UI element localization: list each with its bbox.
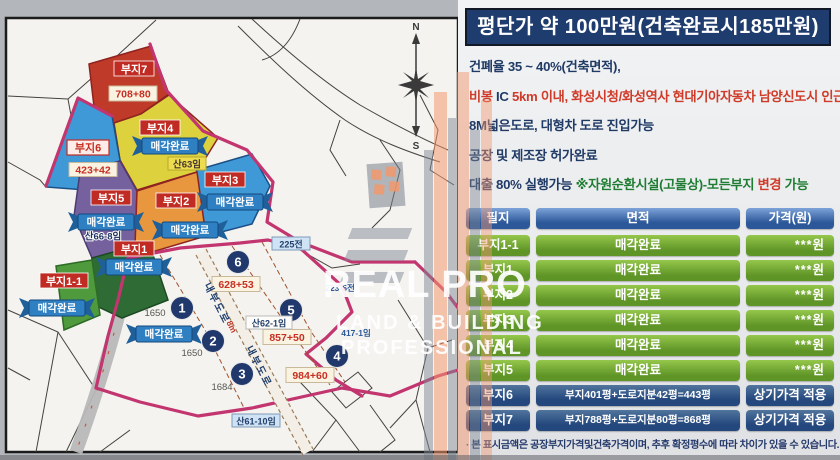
table-footnote: · 본 표시금액은 공장부지가격및건축가격이며, 추후 확정평수에 따라 차이가… xyxy=(466,436,838,451)
svg-text:부지4: 부지4 xyxy=(147,121,174,135)
row-area: 매각완료 xyxy=(536,310,740,331)
label-417-1: 417-1임 xyxy=(341,328,371,338)
table-row: 부지5 매각완료 ***원 xyxy=(466,360,834,381)
svg-text:984+60: 984+60 xyxy=(292,370,327,382)
svg-text:4: 4 xyxy=(333,349,341,364)
notes-block: 건폐율 35 ~ 40%(건축면적), 비봉 IC 5km 이내, 화성시청/화… xyxy=(469,56,837,204)
label-buji1: 부지1 xyxy=(114,241,154,256)
svg-text:부지7: 부지7 xyxy=(121,62,147,76)
svg-text:708+80: 708+80 xyxy=(115,89,150,101)
note-line-3: 8M넓은도로, 대형차 도로 진입가능 xyxy=(469,115,837,134)
label-1684: 1684 xyxy=(211,382,232,393)
ribbon-buji1: 매각완료 xyxy=(96,257,172,277)
table-row: 부지4 매각완료 ***원 xyxy=(466,335,834,356)
label-1650-a: 1650 xyxy=(144,308,165,319)
row-area: 부지401평+도로지분42평=443평 xyxy=(536,385,740,406)
svg-text:부지1-1: 부지1-1 xyxy=(46,274,82,288)
label-buji1-1: 부지1-1 xyxy=(40,273,88,288)
row-name: 부지6 xyxy=(466,385,530,406)
label-857-50: 857+50 xyxy=(263,330,311,345)
note-line-2: 비봉 IC 5km 이내, 화성시청/화성역사 현대기아자동차 남양신도시 인근 xyxy=(469,86,837,105)
label-225jeon: 225전 xyxy=(272,237,310,250)
label-buji2: 부지2 xyxy=(156,193,196,208)
ribbon-site1: 매각완료 xyxy=(126,324,202,344)
label-628-53: 628+53 xyxy=(212,277,260,292)
svg-text:부지6: 부지6 xyxy=(75,141,101,155)
ribbon-buji3: 매각완료 xyxy=(197,192,273,212)
label-buji7-area: 708+80 xyxy=(109,86,157,101)
site-4: 4 xyxy=(326,345,349,368)
svg-text:5: 5 xyxy=(287,303,294,318)
row-name: 부지1-1 xyxy=(466,235,530,256)
table-row: 부지1 매각완료 ***원 xyxy=(466,260,834,281)
row-price: ***원 xyxy=(746,285,834,306)
table-row: 부지1-1 매각완료 ***원 xyxy=(466,235,834,256)
label-buji3: 부지3 xyxy=(205,172,245,187)
row-price: ***원 xyxy=(746,360,834,381)
svg-text:매각완료: 매각완료 xyxy=(87,216,126,229)
table-row: 부지2 매각완료 ***원 xyxy=(466,285,834,306)
row-area: 매각완료 xyxy=(536,285,740,306)
svg-text:부지1: 부지1 xyxy=(121,242,147,256)
ribbon-buji5: 매각완료 xyxy=(68,212,144,232)
row-price: 상기가격 적용 xyxy=(746,385,834,406)
svg-text:2: 2 xyxy=(209,334,216,349)
table-header-row: 필지 면적 가격(원) xyxy=(466,208,834,229)
svg-text:산61-10임: 산61-10임 xyxy=(236,416,276,427)
table-row: 부지6 부지401평+도로지분42평=443평 상기가격 적용 xyxy=(466,385,834,406)
row-name: 부지4 xyxy=(466,335,530,356)
note-line-5: 대출 80% 실행가능 ※자원순환시설(고물상)-모든부지 변경 가능 xyxy=(469,174,837,193)
svg-text:부지2: 부지2 xyxy=(163,194,189,208)
header-price: 가격(원) xyxy=(746,208,834,229)
ribbon-buji2: 매각완료 xyxy=(152,220,228,240)
header-parcel: 필지 xyxy=(466,208,530,229)
svg-text:산62-1임: 산62-1임 xyxy=(252,318,287,329)
photo-edge xyxy=(0,455,840,460)
label-buji7: 부지7 xyxy=(114,61,154,76)
ribbon-buji4: 매각완료 xyxy=(132,136,208,156)
svg-text:부지3: 부지3 xyxy=(212,173,238,187)
svg-text:매각완료: 매각완료 xyxy=(151,140,190,153)
note-line-1: 건폐율 35 ~ 40%(건축면적), xyxy=(469,56,837,75)
site-1: 1 xyxy=(171,297,194,320)
row-area: 매각완료 xyxy=(536,235,740,256)
flyer-photo: 부지7 708+80 부지6 423+42 부지4 xyxy=(0,0,840,460)
label-223-5: 223-5전 xyxy=(325,283,355,293)
label-buji5: 부지5 xyxy=(91,190,131,205)
svg-text:6: 6 xyxy=(234,255,241,270)
row-price: ***원 xyxy=(746,310,834,331)
svg-text:N: N xyxy=(412,22,419,33)
note-line-4: 공장 및 제조장 허가완료 xyxy=(469,145,837,164)
svg-text:628+53: 628+53 xyxy=(218,279,253,291)
site-2: 2 xyxy=(202,330,225,353)
cadastral-map: 부지7 708+80 부지6 423+42 부지4 xyxy=(0,0,460,460)
ribbon-buji1-1: 매각완료 xyxy=(19,298,95,318)
row-name: 부지1 xyxy=(466,260,530,281)
row-price: ***원 xyxy=(746,335,834,356)
svg-text:매각완료: 매각완료 xyxy=(38,302,77,315)
label-buji6-area: 423+42 xyxy=(69,163,117,177)
svg-text:S: S xyxy=(413,141,420,152)
row-name: 부지2 xyxy=(466,285,530,306)
svg-text:산63임: 산63임 xyxy=(173,159,201,171)
row-price: ***원 xyxy=(746,235,834,256)
svg-text:1: 1 xyxy=(178,301,185,316)
price-table: 필지 면적 가격(원) 부지1-1 매각완료 ***원 부지1 매각완료 ***… xyxy=(466,208,834,435)
row-area: 매각완료 xyxy=(536,360,740,381)
info-panel: 평단가 약 100만원(건축완료시185만원) 건폐율 35 ~ 40%(건축면… xyxy=(458,0,840,460)
svg-text:매각완료: 매각완료 xyxy=(145,328,184,341)
label-buji6: 부지6 xyxy=(67,140,109,155)
svg-text:매각완료: 매각완료 xyxy=(216,196,255,209)
header-area: 면적 xyxy=(536,208,740,229)
svg-text:423+42: 423+42 xyxy=(75,165,110,177)
row-name: 부지3 xyxy=(466,310,530,331)
map-svg: 부지7 708+80 부지6 423+42 부지4 xyxy=(0,0,460,460)
row-name: 부지7 xyxy=(466,410,530,431)
label-984-60: 984+60 xyxy=(286,368,334,383)
label-1650-b: 1650 xyxy=(181,348,202,359)
label-san63: 산63임 xyxy=(168,157,206,171)
panel-title: 평단가 약 100만원(건축완료시185만원) xyxy=(465,8,831,46)
row-area: 매각완료 xyxy=(536,260,740,281)
svg-text:매각완료: 매각완료 xyxy=(171,224,210,237)
row-price: 상기가격 적용 xyxy=(746,410,834,431)
row-area: 부지788평+도로지분80평=868평 xyxy=(536,410,740,431)
row-price: ***원 xyxy=(746,260,834,281)
site-6: 6 xyxy=(227,251,250,274)
label-san62-1: 산62-1임 xyxy=(246,316,292,329)
svg-text:225전: 225전 xyxy=(279,239,302,250)
label-san61-10: 산61-10임 xyxy=(232,414,280,427)
table-row: 부지3 매각완료 ***원 xyxy=(466,310,834,331)
svg-text:3: 3 xyxy=(238,367,245,382)
row-name: 부지5 xyxy=(466,360,530,381)
svg-text:부지5: 부지5 xyxy=(98,191,124,205)
table-row: 부지7 부지788평+도로지분80평=868평 상기가격 적용 xyxy=(466,410,834,431)
svg-text:857+50: 857+50 xyxy=(269,332,304,344)
label-buji4: 부지4 xyxy=(140,120,180,135)
row-area: 매각완료 xyxy=(536,335,740,356)
site-3: 3 xyxy=(231,363,254,386)
svg-text:매각완료: 매각완료 xyxy=(115,261,154,274)
